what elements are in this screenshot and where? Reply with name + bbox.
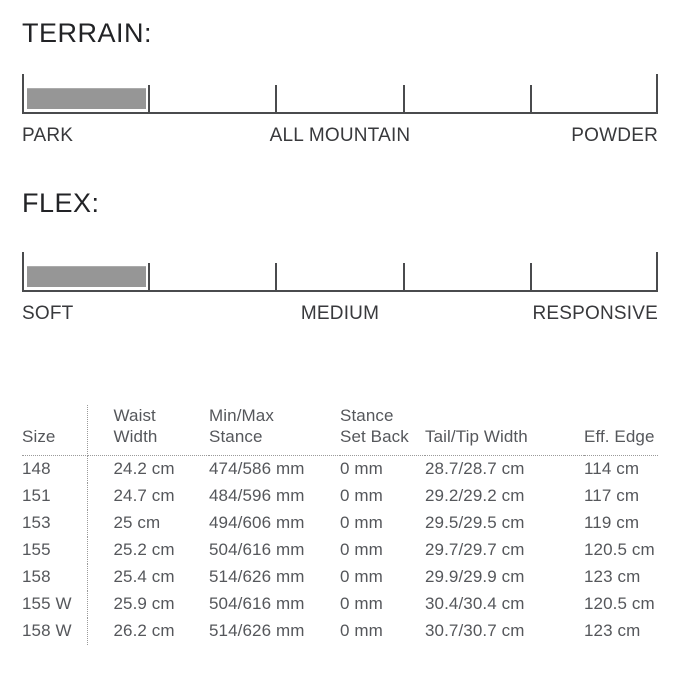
scale-tick	[530, 263, 532, 290]
cell-eff-edge: 117 cm	[584, 483, 658, 510]
cell-size: 148	[22, 456, 87, 483]
flex-heading: FLEX:	[22, 188, 658, 218]
cell-tail-tip-width: 28.7/28.7 cm	[425, 456, 584, 483]
col-header-eff-edge: Eff. Edge	[584, 405, 658, 456]
cell-waist-width: 26.2 cm	[87, 618, 209, 645]
scale-tick	[656, 252, 658, 290]
cell-size: 153	[22, 510, 87, 537]
cell-size: 151	[22, 483, 87, 510]
terrain-scale	[22, 76, 658, 114]
table-row: 155 W 25.9 cm 504/616 mm 0 mm 30.4/30.4 …	[22, 591, 658, 618]
cell-stance-set-back: 0 mm	[340, 537, 425, 564]
cell-size: 158	[22, 564, 87, 591]
flex-label-responsive: RESPONSIVE	[532, 303, 658, 325]
terrain-label-park: PARK	[22, 125, 73, 147]
cell-waist-width: 25.9 cm	[87, 591, 209, 618]
col-header-waist-width: Waist Width	[87, 405, 209, 456]
cell-size: 155 W	[22, 591, 87, 618]
spec-sheet-page: { "terrain_section": { "heading": "TERRA…	[0, 0, 680, 680]
scale-tick	[148, 85, 150, 112]
terrain-section: TERRAIN: PARK ALL MOUNTAIN POWDER	[22, 18, 658, 147]
flex-scale-labels: SOFT MEDIUM RESPONSIVE	[22, 303, 658, 325]
scale-tick	[403, 85, 405, 112]
cell-min-max-stance: 494/606 mm	[209, 510, 340, 537]
cell-min-max-stance: 504/616 mm	[209, 591, 340, 618]
terrain-heading: TERRAIN:	[22, 18, 658, 48]
cell-tail-tip-width: 30.4/30.4 cm	[425, 591, 584, 618]
cell-stance-set-back: 0 mm	[340, 618, 425, 645]
cell-eff-edge: 120.5 cm	[584, 591, 658, 618]
scale-tick	[530, 85, 532, 112]
scale-tick	[403, 263, 405, 290]
cell-tail-tip-width: 29.2/29.2 cm	[425, 483, 584, 510]
cell-tail-tip-width: 30.7/30.7 cm	[425, 618, 584, 645]
table-row: 158 W 26.2 cm 514/626 mm 0 mm 30.7/30.7 …	[22, 618, 658, 645]
scale-tick	[275, 85, 277, 112]
flex-scale-fill-bar	[27, 266, 146, 287]
cell-size: 155	[22, 537, 87, 564]
cell-eff-edge: 120.5 cm	[584, 537, 658, 564]
col-header-min-max-stance: Min/Max Stance	[209, 405, 340, 456]
terrain-label-all-mountain: ALL MOUNTAIN	[270, 125, 411, 147]
scale-tick	[148, 263, 150, 290]
cell-waist-width: 25 cm	[87, 510, 209, 537]
terrain-label-powder: POWDER	[571, 125, 658, 147]
terrain-scale-labels: PARK ALL MOUNTAIN POWDER	[22, 125, 658, 147]
cell-min-max-stance: 504/616 mm	[209, 537, 340, 564]
scale-tick	[22, 252, 24, 290]
cell-eff-edge: 119 cm	[584, 510, 658, 537]
cell-stance-set-back: 0 mm	[340, 483, 425, 510]
cell-min-max-stance: 514/626 mm	[209, 618, 340, 645]
cell-waist-width: 24.2 cm	[87, 456, 209, 483]
scale-tick	[22, 74, 24, 112]
col-header-tail-tip-width: Tail/Tip Width	[425, 405, 584, 456]
table-row: 148 24.2 cm 474/586 mm 0 mm 28.7/28.7 cm…	[22, 456, 658, 483]
cell-min-max-stance: 474/586 mm	[209, 456, 340, 483]
table-row: 151 24.7 cm 484/596 mm 0 mm 29.2/29.2 cm…	[22, 483, 658, 510]
cell-waist-width: 25.2 cm	[87, 537, 209, 564]
spec-table: Size Waist Width Min/Max Stance Stance S…	[22, 405, 658, 645]
cell-eff-edge: 114 cm	[584, 456, 658, 483]
spec-table-section: Size Waist Width Min/Max Stance Stance S…	[22, 405, 658, 645]
cell-eff-edge: 123 cm	[584, 564, 658, 591]
content: TERRAIN: PARK ALL MOUNTAIN POWDER FLEX:	[0, 0, 680, 645]
col-header-size: Size	[22, 405, 87, 456]
table-row: 153 25 cm 494/606 mm 0 mm 29.5/29.5 cm 1…	[22, 510, 658, 537]
flex-scale	[22, 254, 658, 292]
cell-waist-width: 24.7 cm	[87, 483, 209, 510]
cell-tail-tip-width: 29.5/29.5 cm	[425, 510, 584, 537]
flex-label-soft: SOFT	[22, 303, 73, 325]
cell-stance-set-back: 0 mm	[340, 510, 425, 537]
scale-tick	[275, 263, 277, 290]
table-header-row: Size Waist Width Min/Max Stance Stance S…	[22, 405, 658, 456]
cell-tail-tip-width: 29.7/29.7 cm	[425, 537, 584, 564]
flex-label-medium: MEDIUM	[301, 303, 379, 325]
cell-min-max-stance: 484/596 mm	[209, 483, 340, 510]
cell-waist-width: 25.4 cm	[87, 564, 209, 591]
cell-tail-tip-width: 29.9/29.9 cm	[425, 564, 584, 591]
cell-min-max-stance: 514/626 mm	[209, 564, 340, 591]
col-header-stance-set-back: Stance Set Back	[340, 405, 425, 456]
cell-stance-set-back: 0 mm	[340, 564, 425, 591]
scale-tick	[656, 74, 658, 112]
cell-stance-set-back: 0 mm	[340, 591, 425, 618]
table-row: 158 25.4 cm 514/626 mm 0 mm 29.9/29.9 cm…	[22, 564, 658, 591]
terrain-scale-fill-bar	[27, 88, 146, 109]
cell-size: 158 W	[22, 618, 87, 645]
cell-stance-set-back: 0 mm	[340, 456, 425, 483]
table-row: 155 25.2 cm 504/616 mm 0 mm 29.7/29.7 cm…	[22, 537, 658, 564]
cell-eff-edge: 123 cm	[584, 618, 658, 645]
flex-section: FLEX: SOFT MEDIUM RESPONSIVE	[22, 188, 658, 325]
